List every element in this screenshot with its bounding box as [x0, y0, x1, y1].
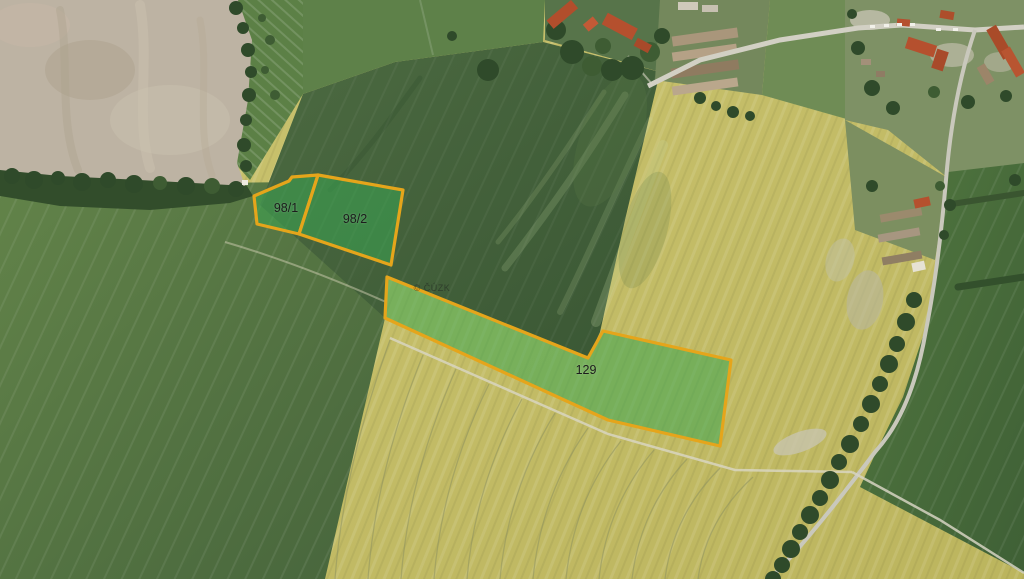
aerial-basemap: [0, 0, 1024, 579]
map-viewport[interactable]: 98/1 98/2 129 © ČÚZK: [0, 0, 1024, 579]
